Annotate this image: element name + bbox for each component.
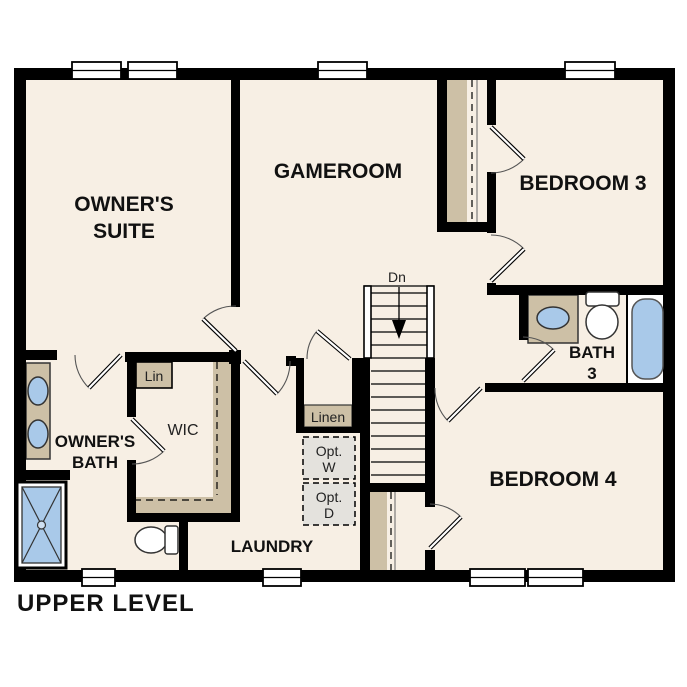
- bath3-label-line2: 3: [587, 364, 596, 383]
- lin-closet-label: Lin: [145, 368, 164, 384]
- optional-dryer-box: Opt. D: [303, 483, 355, 525]
- bedroom4-label: BEDROOM 4: [489, 468, 617, 491]
- wall-owners-bath-top: [26, 350, 57, 360]
- wall-bedroom3-closet-left: [437, 80, 447, 230]
- wall-bedroom3-left-b: [487, 172, 496, 233]
- window: [565, 62, 615, 79]
- washer-label-line1: Opt.: [316, 443, 342, 459]
- owners-bath-label-line2: BATH: [72, 453, 118, 472]
- wall-bedroom4-top: [485, 383, 675, 392]
- wall-stairs-bottom: [360, 483, 435, 492]
- sink-icon: [537, 307, 569, 329]
- window: [528, 569, 583, 586]
- stair-rail-left: [364, 286, 371, 358]
- bedroom4-closet-shelf: [370, 492, 387, 570]
- wall-bath3-left: [519, 295, 528, 340]
- stairs-down-label: Dn: [388, 269, 406, 285]
- sink-icon: [28, 377, 48, 405]
- bedroom3-label: BEDROOM 3: [519, 172, 646, 195]
- wall-closet4-stub: [425, 550, 435, 570]
- sink-icon: [28, 420, 48, 448]
- wic-label: WIC: [167, 422, 198, 439]
- wall-shower-top: [14, 470, 70, 480]
- wall-exterior-right: [663, 68, 675, 582]
- window: [318, 62, 367, 79]
- owners-bath-label-line1: OWNER'S: [55, 432, 136, 451]
- gameroom-label: GAMEROOM: [274, 160, 402, 183]
- wall-wic-left-upper: [127, 352, 136, 417]
- wall-wic-bottom: [127, 513, 240, 522]
- wall-owners-suite-right: [231, 80, 240, 307]
- wic-rod-shelf-right: [213, 362, 231, 513]
- bedroom3-closet-shelf: [447, 80, 467, 222]
- wall-linen-bottom: [296, 427, 361, 433]
- wall-toilet-nook: [179, 522, 188, 570]
- stair-rail-right: [427, 286, 434, 358]
- toilet-icon: [586, 292, 619, 339]
- wall-bedroom3-bottom: [487, 285, 675, 295]
- window: [128, 62, 177, 79]
- wall-bedroom3-left-a: [487, 80, 496, 125]
- window: [263, 569, 301, 586]
- shower-icon: [17, 482, 66, 568]
- page-title: UPPER LEVEL: [17, 590, 195, 617]
- floor-plan: Dn: [0, 0, 687, 687]
- wall-stairs-left: [360, 358, 370, 570]
- linen-closet-label: Linen: [311, 409, 345, 425]
- wall-hall-stub: [286, 356, 296, 366]
- window: [470, 569, 525, 586]
- owners-suite-label-line2: SUITE: [93, 220, 155, 243]
- owners-suite-label-line1: OWNER'S: [74, 193, 174, 216]
- bath3-label-line1: BATH: [569, 343, 615, 362]
- wall-wic-top: [125, 352, 233, 362]
- wall-wic-left-lower: [127, 460, 136, 522]
- toilet-icon: [135, 526, 178, 554]
- bathtub-icon: [627, 295, 663, 383]
- dryer-label-line1: Opt.: [316, 489, 342, 505]
- laundry-label: LAUNDRY: [231, 537, 314, 556]
- wall-wic-right: [231, 352, 240, 522]
- dryer-label-line2: D: [324, 505, 334, 521]
- washer-label-line2: W: [322, 459, 336, 475]
- window: [82, 569, 115, 586]
- wall-linen-left: [296, 358, 304, 433]
- window: [72, 62, 121, 79]
- optional-washer-box: Opt. W: [303, 437, 355, 479]
- wall-linen-right: [352, 358, 361, 433]
